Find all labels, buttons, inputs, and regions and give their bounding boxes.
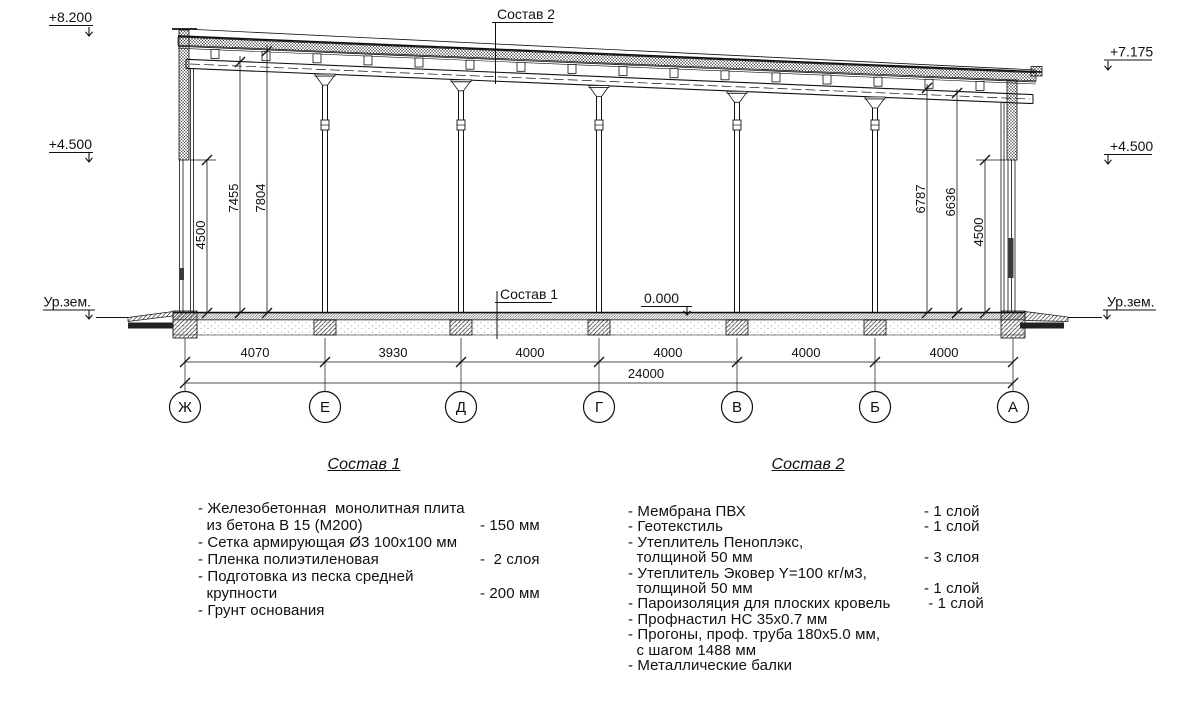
- material-row: крупности- 200 мм: [198, 585, 590, 602]
- elevation-label: +8.200: [49, 9, 92, 25]
- material-row: - Профнастил НС 35x0.7 мм: [628, 612, 1028, 627]
- axis-bubble-label: В: [732, 399, 742, 416]
- elevation-mark-left-450: +4.500: [49, 136, 93, 162]
- material-text: - Металлические балки: [628, 658, 924, 673]
- total-dim-label: 24000: [628, 366, 664, 381]
- callout-label: Состав 2: [497, 6, 555, 22]
- grid-axes: Ж Е Д Г В Б А: [170, 392, 1029, 423]
- left-wall-panel: [179, 30, 189, 160]
- roof-assembly: [172, 29, 1042, 104]
- floor-slab: [96, 311, 1102, 338]
- material-row: - Утеплитель Эковер Y=100 кг/м3,: [628, 566, 1028, 581]
- axis-bubble-label: Д: [456, 399, 466, 416]
- bay-dim: 4000: [792, 345, 821, 360]
- vdim-right-6636: 6636: [943, 188, 958, 217]
- material-text: - Грунт основания: [198, 602, 480, 619]
- section-drawing: 4500 7455 7804 6787 6636 4500 4070 3930 …: [0, 0, 1200, 445]
- material-text: - Геотекстиль: [628, 519, 924, 534]
- bay-dim: 4000: [516, 345, 545, 360]
- material-text: с шагом 1488 мм: [628, 643, 924, 658]
- ground-level-label: Ур.зем.: [1107, 294, 1155, 310]
- axis-bubble-label: Ж: [178, 399, 192, 416]
- material-text: из бетона В 15 (М200): [198, 517, 480, 534]
- material-value: [924, 612, 1028, 627]
- elevation-mark-top-left: +8.200: [49, 9, 93, 36]
- vdim-right-4500: 4500: [971, 218, 986, 247]
- material-row: - Сетка армирующая Ø3 100x100 мм: [198, 534, 590, 551]
- left-wall-detail: [180, 268, 184, 280]
- material-text: - Подготовка из песка средней: [198, 568, 480, 585]
- material-value: [924, 658, 1028, 673]
- material-row: - Грунт основания: [198, 602, 590, 619]
- material-row: - Железобетонная монолитная плита: [198, 500, 590, 517]
- material-value: [924, 627, 1028, 642]
- material-text: - Профнастил НС 35x0.7 мм: [628, 612, 924, 627]
- left-apron: [96, 312, 173, 329]
- bay-dim: 4000: [930, 345, 959, 360]
- elevation-label: +4.500: [49, 136, 92, 152]
- right-wall: [1001, 80, 1017, 313]
- roof-insulation: [178, 37, 1036, 81]
- material-row: - Подготовка из песка средней: [198, 568, 590, 585]
- axis-bubble-label: А: [1008, 399, 1018, 416]
- axis-bubble-label: Г: [595, 399, 603, 416]
- callout-label: Состав 1: [500, 286, 558, 302]
- bay-dim: 4070: [241, 345, 270, 360]
- material-row: из бетона В 15 (М200)- 150 мм: [198, 517, 590, 534]
- material-value: [480, 534, 590, 551]
- elevation-label: +7.175: [1110, 44, 1153, 60]
- material-text: - Мембрана ПВХ: [628, 504, 924, 519]
- material-text: - Прогоны, проф. труба 180x5.0 мм,: [628, 627, 924, 642]
- material-value: - 1 слой: [924, 519, 1028, 534]
- material-value: - 200 мм: [480, 585, 590, 602]
- material-text: - Пленка полиэтиленовая: [198, 551, 480, 568]
- elevation-mark-right-450: +4.500: [1104, 138, 1153, 164]
- vertical-dimensions-left: 4500 7455 7804: [190, 45, 272, 318]
- axis-bubble-label: Б: [870, 399, 880, 416]
- material-value: [924, 643, 1028, 658]
- composition-1-title: Состав 1: [198, 456, 530, 474]
- material-row: - Пароизоляция для плоских кровель - 1 с…: [628, 596, 1028, 611]
- slab-screed: [173, 313, 1025, 320]
- material-row: - Пленка полиэтиленовая- 2 слоя: [198, 551, 590, 568]
- column: [451, 80, 471, 313]
- vdim-left-7455: 7455: [226, 184, 241, 213]
- material-text: толщиной 50 мм: [628, 581, 924, 596]
- material-text: крупности: [198, 585, 480, 602]
- column: [589, 86, 609, 314]
- right-apron: [1020, 312, 1102, 329]
- vdim-left-4500: 4500: [193, 221, 208, 250]
- composition-2-list: Состав 2 - Мембрана ПВХ- 1 слой - Геотек…: [628, 456, 1028, 673]
- ground-level-label: Ур.зем.: [43, 294, 91, 310]
- ground-level-mark-left: Ур.зем.: [43, 294, 95, 320]
- composition-2-title: Состав 2: [628, 456, 988, 474]
- material-value: - 1 слой: [924, 596, 1028, 611]
- zero-level-label: 0.000: [644, 290, 679, 306]
- composition-1-list: Состав 1 - Железобетонная монолитная пли…: [198, 456, 590, 619]
- right-wall-panel: [1007, 80, 1017, 160]
- bay-dim: 3930: [379, 345, 408, 360]
- material-value: - 3 слоя: [924, 550, 1028, 565]
- material-value: [480, 568, 590, 585]
- material-row: - Утеплитель Пеноплэкс,: [628, 535, 1028, 550]
- material-value: - 1 слой: [924, 504, 1028, 519]
- material-value: - 150 мм: [480, 517, 590, 534]
- material-value: [480, 602, 590, 619]
- material-text: - Пароизоляция для плоских кровель: [628, 596, 924, 611]
- ground-level-mark-right: Ур.зем.: [1103, 294, 1156, 320]
- columns: [315, 74, 885, 313]
- material-value: - 2 слоя: [480, 551, 590, 568]
- bay-dim: 4000: [654, 345, 683, 360]
- axis-bubble-label: Е: [320, 399, 330, 416]
- material-value: - 1 слой: [924, 581, 1028, 596]
- material-value: [924, 535, 1028, 550]
- column: [727, 91, 747, 313]
- vdim-right-6787: 6787: [913, 185, 928, 214]
- material-row: - Геотекстиль- 1 слой: [628, 519, 1028, 534]
- drawing-sheet: 4500 7455 7804 6787 6636 4500 4070 3930 …: [0, 0, 1200, 709]
- material-text: толщиной 50 мм: [628, 550, 924, 565]
- material-text: - Утеплитель Эковер Y=100 кг/м3,: [628, 566, 924, 581]
- material-text: - Утеплитель Пеноплэкс,: [628, 535, 924, 550]
- material-row: толщиной 50 мм- 1 слой: [628, 581, 1028, 596]
- material-text: - Сетка армирующая Ø3 100x100 мм: [198, 534, 480, 551]
- roof-end-cap: [1031, 67, 1042, 77]
- material-row: - Прогоны, проф. труба 180x5.0 мм,: [628, 627, 1028, 642]
- zero-level-mark: 0.000: [641, 290, 692, 315]
- material-row: - Металлические балки: [628, 658, 1028, 673]
- vertical-dimensions-right: 6787 6636 4500: [913, 83, 1006, 318]
- elevation-label: +4.500: [1110, 138, 1153, 154]
- material-row: с шагом 1488 мм: [628, 643, 1028, 658]
- column: [315, 74, 335, 313]
- material-text: - Железобетонная монолитная плита: [198, 500, 480, 517]
- material-value: [480, 500, 590, 517]
- left-wall: [179, 30, 194, 313]
- right-wall-detail: [1009, 238, 1014, 278]
- material-value: [924, 566, 1028, 581]
- roof-membrane: [178, 36, 1042, 72]
- material-row: - Мембрана ПВХ- 1 слой: [628, 504, 1028, 519]
- column: [865, 97, 885, 313]
- vdim-left-7804: 7804: [253, 184, 268, 213]
- elevation-mark-top-right: +7.175: [1104, 44, 1153, 71]
- material-row: толщиной 50 мм- 3 слоя: [628, 550, 1028, 565]
